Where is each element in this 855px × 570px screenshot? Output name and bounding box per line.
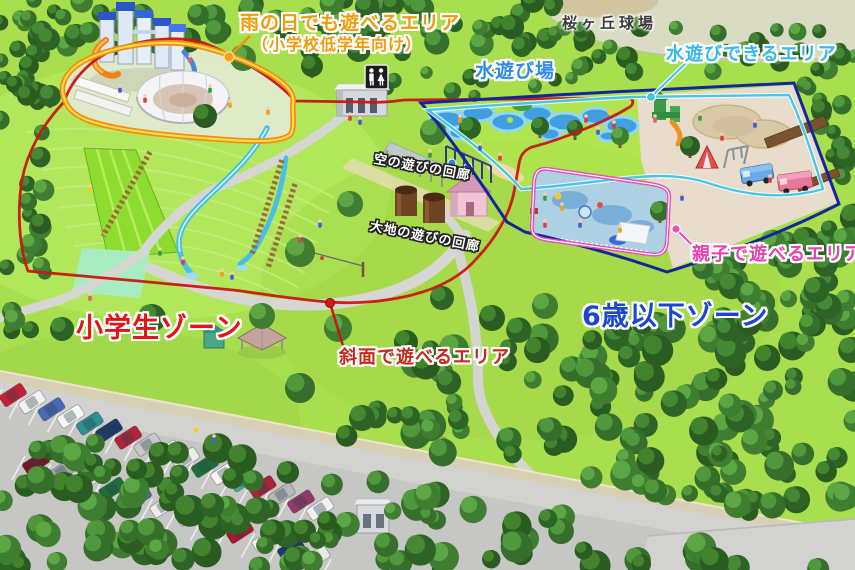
label-rain-area-sub: （小学校低学年向け）	[252, 37, 422, 53]
label-water-play-spot: 水遊び場	[475, 62, 555, 81]
label-under-six-zone: 6歳以下ゾーン	[582, 303, 768, 330]
label-ballpark: 桜ヶ丘球場	[562, 16, 657, 31]
restroom-sign-icon	[365, 65, 388, 89]
label-slope-play-area: 斜面で遊べるエリア	[339, 349, 510, 367]
label-parent-child-area: 親子で遊べるエリア	[692, 246, 855, 264]
park-map: 雨の日でも遊べるエリア （小学校低学年向け） 桜ヶ丘球場 水遊びできるエリア 水…	[0, 0, 855, 570]
map-illustration	[0, 0, 855, 570]
label-rain-area: 雨の日でも遊べるエリア	[240, 14, 460, 33]
label-water-play-area: 水遊びできるエリア	[666, 46, 837, 64]
label-elementary-zone: 小学生ゾーン	[76, 315, 243, 342]
